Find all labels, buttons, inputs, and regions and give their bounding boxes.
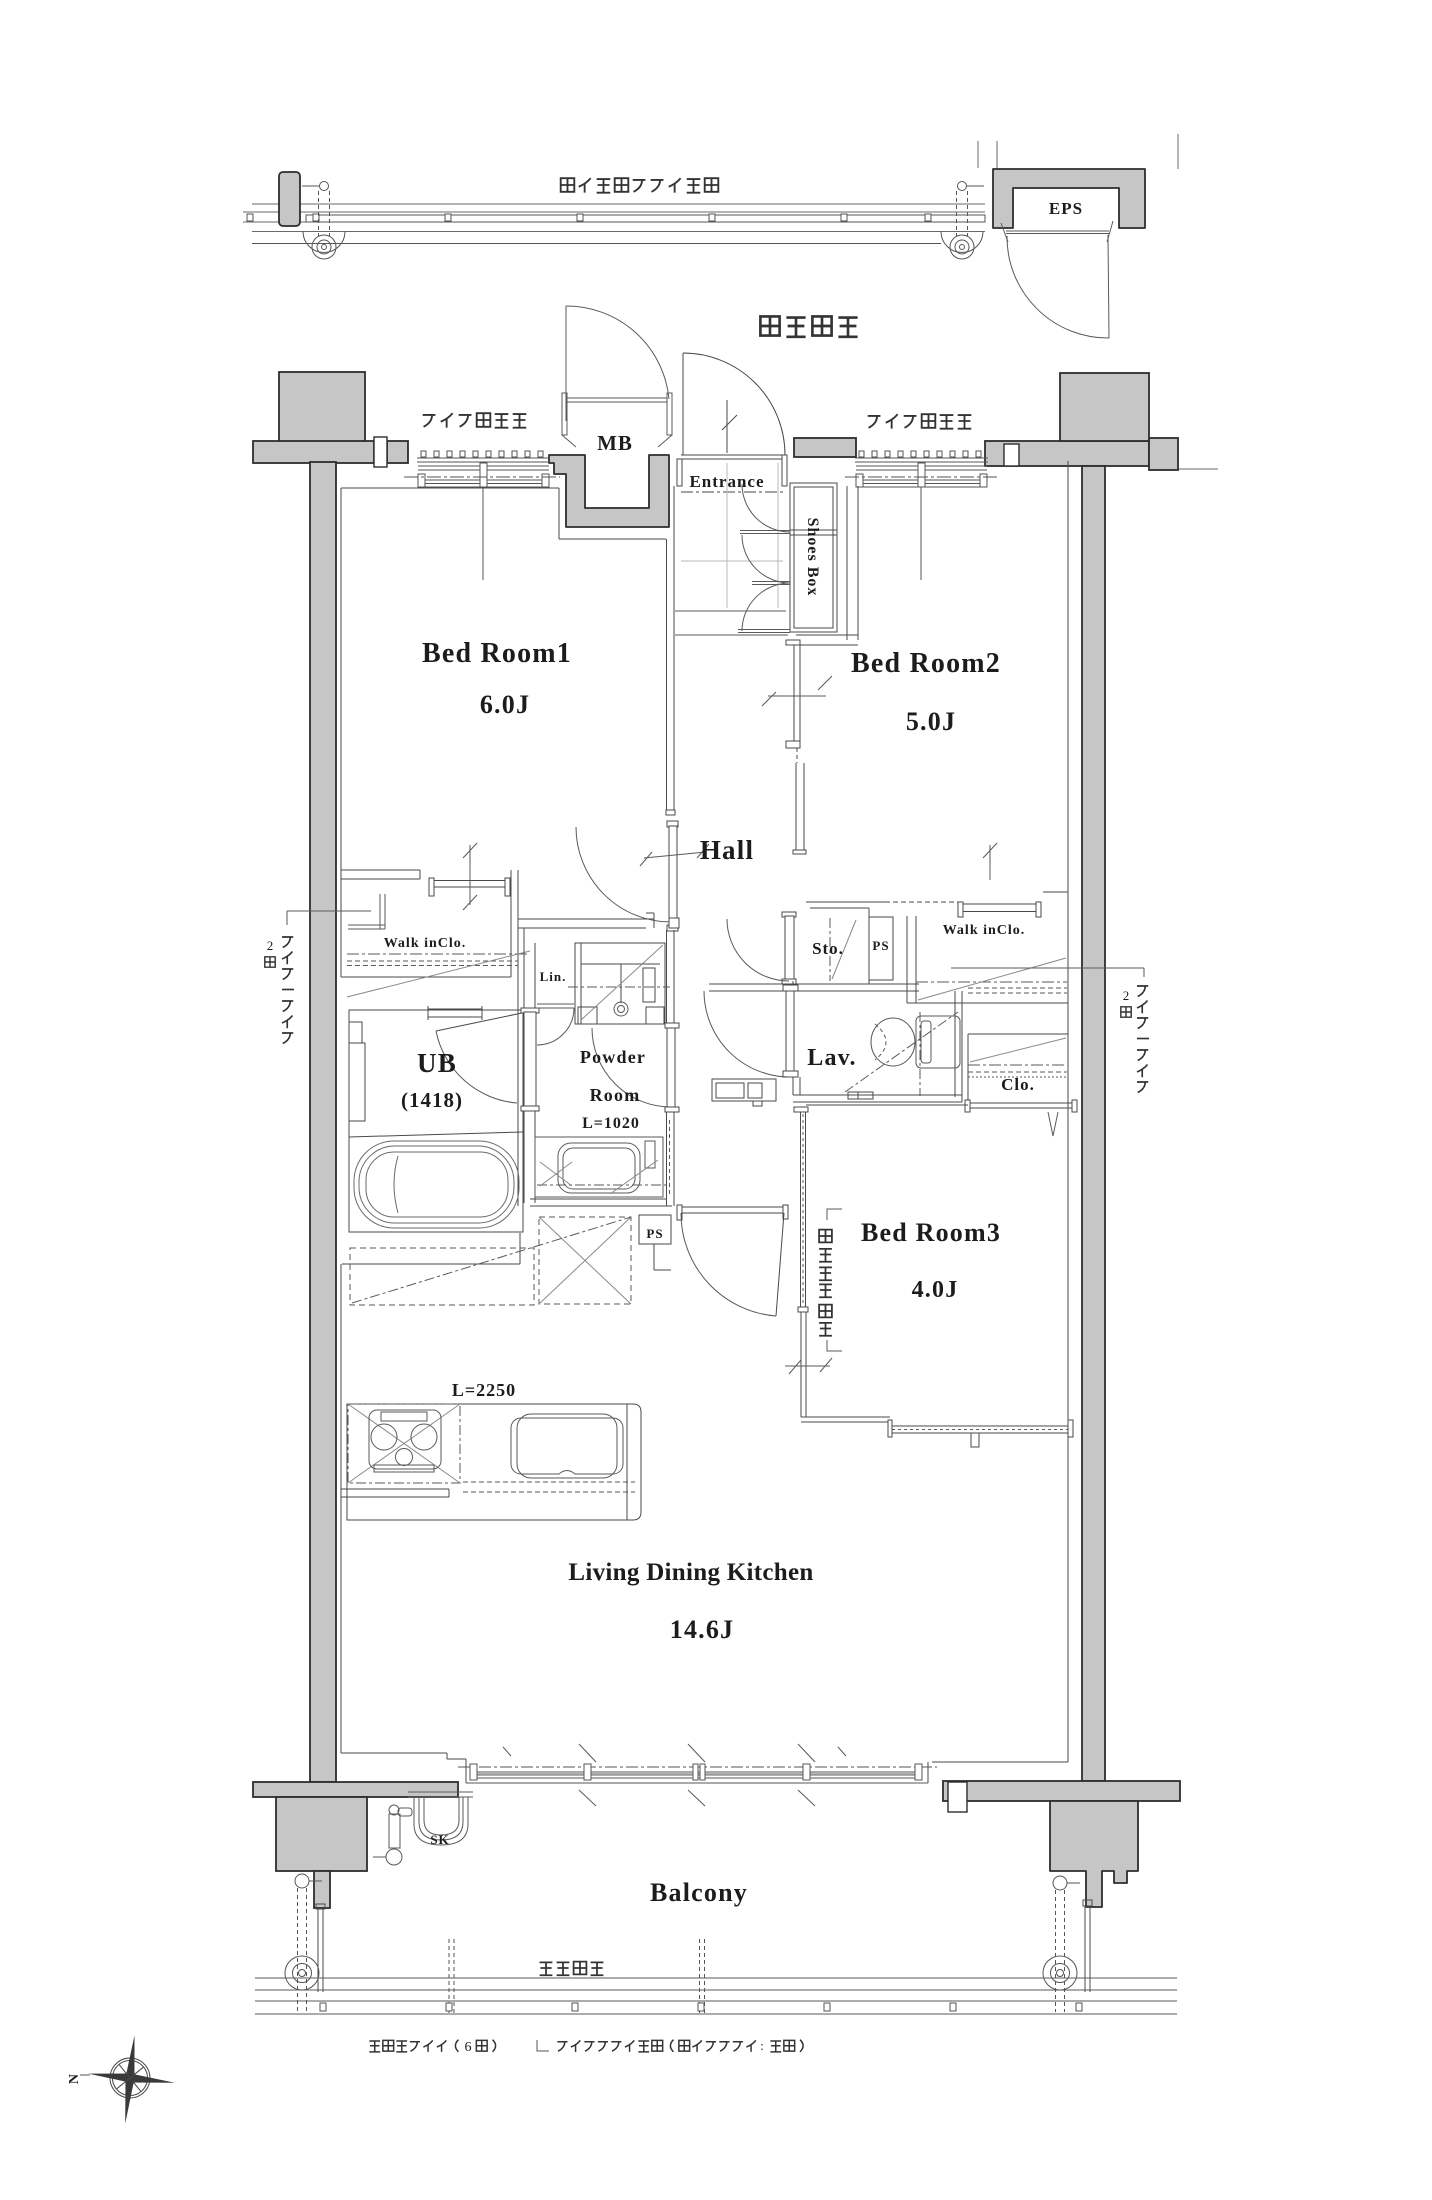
svg-text:Clo.: Clo.: [1001, 1075, 1035, 1094]
svg-text:4.0J: 4.0J: [912, 1277, 959, 1303]
svg-text:Living Dining Kitchen: Living Dining Kitchen: [568, 1559, 813, 1586]
svg-text:UB: UB: [417, 1048, 457, 1078]
svg-text:Hall: Hall: [700, 835, 754, 865]
svg-text:Bed Room2: Bed Room2: [851, 648, 1001, 679]
svg-text:6: 6: [465, 2040, 472, 2055]
svg-text:Powder: Powder: [580, 1047, 646, 1067]
svg-text:PS: PS: [646, 1226, 663, 1241]
svg-text:Walk inClo.: Walk inClo.: [384, 936, 467, 951]
svg-text:Walk inClo.: Walk inClo.: [943, 923, 1026, 938]
svg-text:Shoes Box: Shoes Box: [804, 518, 821, 597]
svg-text:Sto.: Sto.: [812, 939, 844, 958]
svg-text:2: 2: [267, 938, 274, 953]
svg-text:Room: Room: [590, 1085, 641, 1105]
svg-text:MB: MB: [597, 431, 633, 455]
svg-text:(1418): (1418): [401, 1088, 463, 1112]
svg-text:Balcony: Balcony: [650, 1878, 748, 1907]
svg-text:5.0J: 5.0J: [906, 707, 956, 736]
svg-text:L=1020: L=1020: [582, 1115, 640, 1132]
svg-text:Entrance: Entrance: [689, 472, 764, 491]
svg-text:N: N: [67, 2074, 82, 2084]
svg-text:L=2250: L=2250: [452, 1380, 516, 1400]
svg-text:EPS: EPS: [1049, 199, 1083, 218]
svg-text:Bed Room1: Bed Room1: [422, 638, 572, 669]
svg-text:SK: SK: [430, 1832, 449, 1847]
svg-text::: :: [760, 2038, 764, 2053]
svg-text:2: 2: [1123, 988, 1130, 1003]
svg-text:Lav.: Lav.: [807, 1045, 856, 1071]
svg-text:Bed Room3: Bed Room3: [861, 1218, 1001, 1247]
svg-text:14.6J: 14.6J: [670, 1615, 735, 1644]
svg-text:Lin.: Lin.: [540, 969, 567, 984]
svg-text:PS: PS: [872, 938, 889, 953]
svg-text:6.0J: 6.0J: [480, 690, 530, 719]
